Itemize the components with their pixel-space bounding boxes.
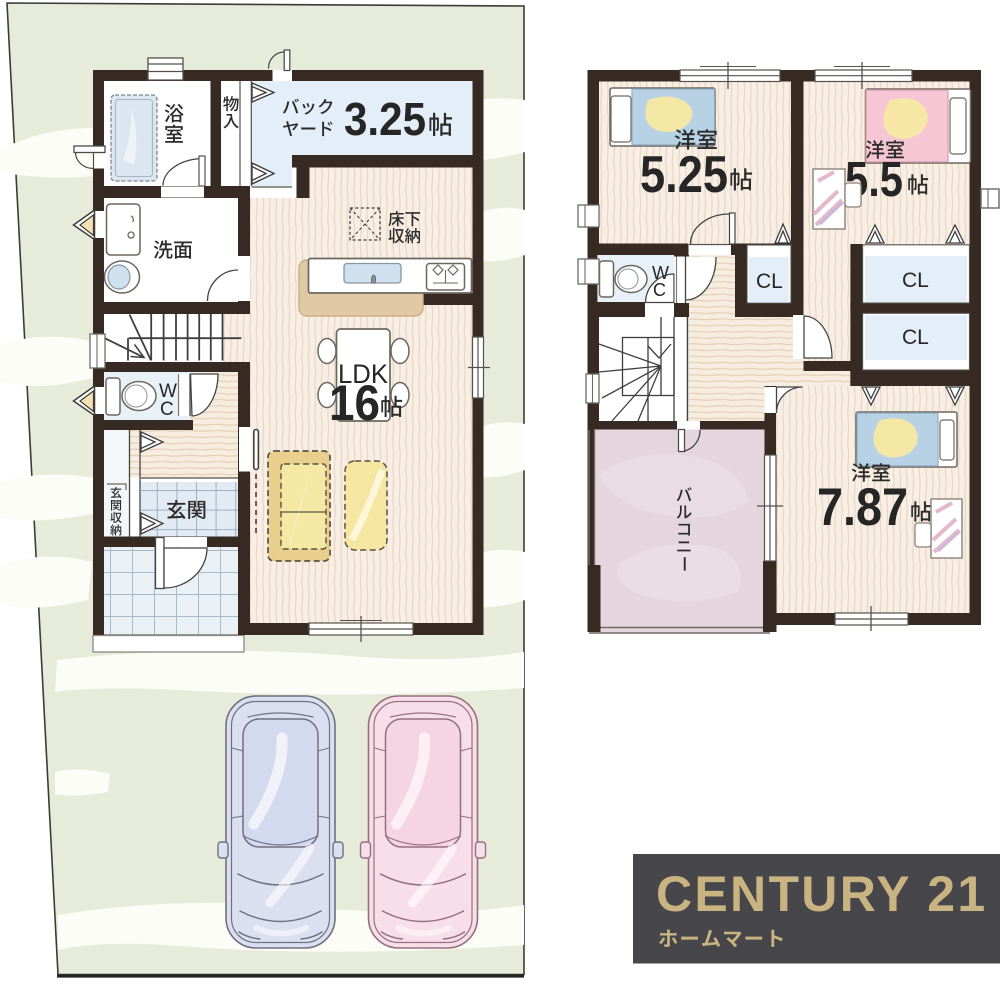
svg-text:CENTURY 21: CENTURY 21 [656, 866, 987, 922]
svg-text:16: 16 [329, 375, 380, 431]
svg-text:CL: CL [902, 326, 929, 349]
svg-text:CL: CL [902, 269, 929, 292]
svg-text:7.87: 7.87 [817, 478, 908, 537]
svg-text:5.25: 5.25 [640, 146, 728, 204]
svg-text:CL: CL [756, 270, 783, 293]
svg-text:C: C [653, 280, 666, 300]
svg-text:C: C [160, 399, 174, 420]
svg-text:3.25: 3.25 [344, 93, 426, 145]
